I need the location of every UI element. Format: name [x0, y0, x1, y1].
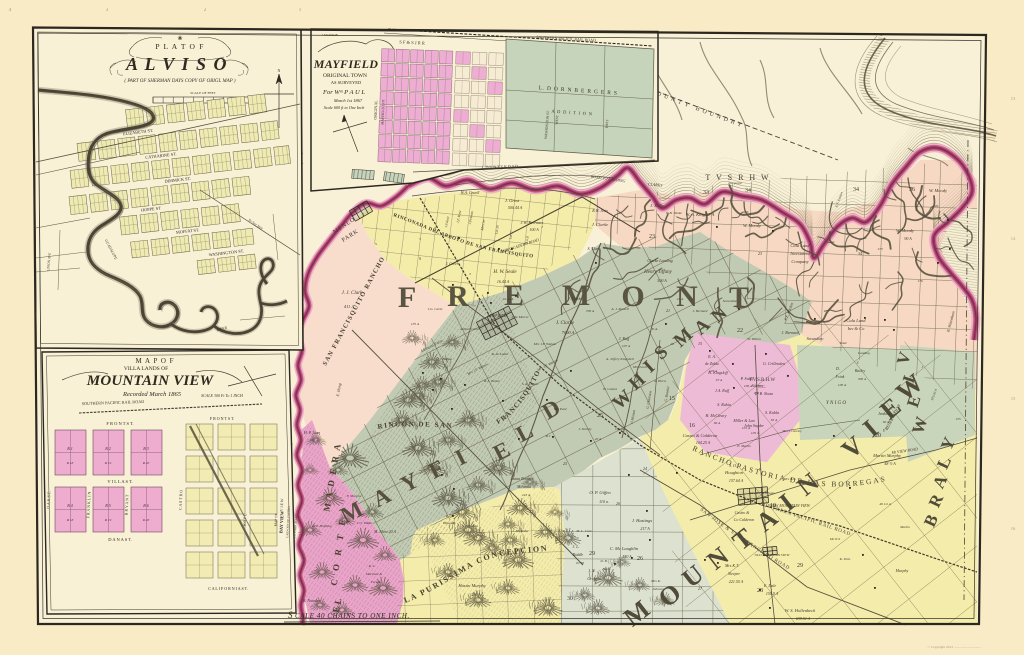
svg-text:14: 14 — [1011, 236, 1016, 241]
svg-text:Riddle: Riddle — [572, 552, 584, 557]
svg-text:16.44 A: 16.44 A — [503, 297, 515, 301]
svg-text:48 ½ A: 48 ½ A — [884, 461, 896, 466]
svg-text:105 A: 105 A — [751, 431, 760, 435]
svg-text:21: 21 — [666, 308, 670, 313]
svg-text:100 A: 100 A — [754, 391, 763, 395]
svg-text:13: 13 — [1011, 96, 1016, 101]
svg-text:F R O N T S T.: F R O N T S T. — [210, 416, 234, 421]
svg-text:R 20: R 20 — [142, 518, 150, 522]
svg-text:Secundino: Secundino — [807, 336, 824, 341]
svg-text:SCALE 300 Ft To 1 INCH: SCALE 300 Ft To 1 INCH — [201, 393, 244, 398]
svg-text:S. O.: S. O. — [729, 463, 737, 468]
svg-text:20 A: 20 A — [595, 437, 602, 441]
svg-text:Jenkins: Jenkins — [878, 411, 890, 416]
svg-text:H. W. Seale: H. W. Seale — [492, 270, 517, 275]
svg-text:D.: D. — [835, 366, 840, 371]
svg-text:J. Greer: J. Greer — [446, 262, 459, 266]
svg-text:Investment: Investment — [789, 251, 810, 256]
svg-text:48: 48 — [670, 342, 674, 346]
svg-text:34: 34 — [858, 251, 862, 256]
svg-text:Mrs Lovel: Mrs Lovel — [632, 365, 647, 369]
svg-text:S: S — [288, 610, 293, 620]
svg-text:173: 173 — [877, 247, 883, 251]
svg-text:H. McCleary: H. McCleary — [705, 413, 727, 418]
svg-text:30: 30 — [567, 596, 573, 602]
svg-text:24: 24 — [643, 466, 647, 471]
svg-text:22: 22 — [737, 328, 743, 334]
svg-text:23: 23 — [758, 251, 762, 256]
svg-text:Murphy: Murphy — [895, 568, 909, 573]
svg-text:B 1: B 1 — [67, 446, 72, 451]
svg-text:65 A: 65 A — [771, 418, 778, 422]
svg-text:VILLA LANDS OF: VILLA LANDS OF — [124, 366, 168, 372]
svg-text:J. Bernard: J. Bernard — [693, 309, 708, 313]
svg-text:A. Jeffery Kingsbell: A. Jeffery Kingsbell — [605, 357, 634, 361]
svg-text:M A P O F: M A P O F — [135, 357, 174, 365]
svg-text:V I E W: V I E W — [280, 498, 285, 511]
svg-text:W.A. Gruell: W.A. Gruell — [461, 190, 481, 195]
svg-text:F R O N T S T.: F R O N T S T. — [106, 421, 133, 426]
svg-text:15: 15 — [698, 341, 702, 346]
svg-text:K. Dots: K. Dots — [839, 557, 851, 561]
svg-text:34: 34 — [745, 188, 751, 194]
svg-text:Inv & Co: Inv & Co — [847, 326, 865, 331]
svg-text:100 A: 100 A — [838, 383, 847, 387]
svg-text:157.64 A: 157.64 A — [729, 478, 744, 483]
svg-text:33: 33 — [703, 190, 709, 196]
svg-text:V I L L A S T.: V I L L A S T. — [107, 479, 132, 484]
svg-text:J. Clarke: J. Clarke — [568, 297, 582, 301]
svg-text:107 A: 107 A — [622, 344, 631, 348]
svg-text:John Snyder: John Snyder — [744, 423, 764, 428]
svg-text:B 2: B 2 — [105, 446, 110, 451]
svg-text:E. Martin: E. Martin — [736, 444, 751, 448]
svg-text:25: 25 — [597, 413, 603, 419]
svg-text:Henry Tiffany: Henry Tiffany — [643, 270, 672, 275]
svg-text:S. Clark: S. Clark — [587, 246, 600, 251]
svg-text:110 a.: 110 a. — [599, 499, 609, 504]
svg-text:ORIGINAL: ORIGINAL — [373, 100, 379, 120]
svg-text:Mrs B.C.: Mrs B.C. — [783, 477, 797, 481]
svg-text:J. Kelly: J. Kelly — [650, 203, 664, 208]
svg-text:700 A: 700 A — [586, 309, 595, 313]
svg-text:O A K S T.: O A K S T. — [46, 491, 52, 509]
svg-text:J. Snively: J. Snively — [578, 427, 592, 431]
svg-text:R 19: R 19 — [104, 461, 112, 465]
svg-text:15: 15 — [669, 396, 675, 402]
svg-text:Y N I G O: Y N I G O — [826, 401, 846, 406]
svg-text:Cala Land: Cala Land — [790, 243, 810, 248]
svg-text:25: 25 — [563, 461, 567, 466]
svg-text:© Copyright 2013 .............: © Copyright 2013 .......................… — [927, 644, 981, 649]
svg-text:J.W. Beelware: J.W. Beelware — [521, 220, 544, 225]
svg-text:Graham: Graham — [587, 576, 600, 581]
svg-text:Scale 600 ft to One Inch: Scale 600 ft to One Inch — [324, 105, 365, 110]
svg-text:Mrs B.C. De Soto: Mrs B.C. De Soto — [749, 491, 775, 495]
svg-text:MAP OF: MAP OF — [274, 513, 279, 526]
svg-text:Ashbell Green: Ashbell Green — [459, 327, 480, 331]
svg-text:S.: S. — [759, 467, 762, 471]
svg-text:O. Hubba: O. Hubba — [438, 357, 452, 361]
svg-text:3: 3 — [469, 272, 471, 276]
svg-text:Mrs J Cawley: Mrs J Cawley — [781, 429, 802, 433]
svg-text:Secundino: Secundino — [723, 299, 738, 303]
svg-text:OLD MOUNTAIN VIEW: OLD MOUNTAIN VIEW — [755, 553, 791, 557]
svg-text:S: S — [419, 256, 421, 261]
svg-text:Houghton: Houghton — [724, 470, 744, 475]
svg-text:W. A. King 97 A: W. A. King 97 A — [686, 212, 715, 217]
svg-text:Landing: Landing — [857, 351, 870, 355]
svg-text:W. Moody: W. Moody — [896, 228, 914, 233]
svg-text:Mc K 9: Mc K 9 — [829, 537, 841, 541]
svg-text:AS SURVEYED: AS SURVEYED — [331, 80, 362, 85]
svg-text:P L A T O F: P L A T O F — [155, 42, 204, 51]
svg-text:16: 16 — [689, 423, 695, 429]
svg-text:S. Kubla: S. Kubla — [765, 410, 779, 415]
svg-text:15: 15 — [1011, 396, 1016, 401]
svg-text:J.: J. — [857, 360, 860, 365]
svg-text:23: 23 — [649, 234, 655, 240]
svg-text:67.48: 67.48 — [576, 561, 584, 565]
svg-text:M. L. Cure: M. L. Cure — [575, 529, 592, 533]
svg-text:B 6: B 6 — [143, 503, 148, 508]
svg-text:B 3: B 3 — [143, 446, 148, 451]
svg-text:159.9 A: 159.9 A — [766, 591, 779, 596]
svg-text:Mrs K.: Mrs K. — [650, 579, 661, 583]
svg-text:Total: Total — [839, 341, 846, 345]
svg-text:Sleeper: Sleeper — [728, 571, 740, 576]
svg-text:104.25 A: 104.25 A — [696, 440, 711, 445]
svg-text:Bailey: Bailey — [855, 368, 865, 373]
svg-text:B 4: B 4 — [67, 503, 72, 508]
svg-text:Cala Land: Cala Land — [846, 318, 866, 323]
svg-text:90 A: 90 A — [904, 236, 912, 241]
svg-text:E. Dale: E. Dale — [763, 583, 776, 588]
svg-text:240 A: 240 A — [622, 554, 632, 559]
svg-text:N: N — [278, 68, 281, 73]
svg-text:176: 176 — [917, 279, 923, 283]
svg-text:Castro &: Castro & — [735, 510, 751, 515]
svg-text:Co Calderon: Co Calderon — [734, 517, 755, 522]
svg-text:Clarke Landing: Clarke Landing — [647, 258, 672, 263]
svg-text:E.: E. — [879, 403, 883, 408]
svg-text:500 A: 500 A — [657, 278, 667, 283]
svg-text:A. J. Russell: A. J. Russell — [610, 307, 628, 311]
svg-text:R 18: R 18 — [66, 518, 74, 522]
svg-text:R 19: R 19 — [104, 518, 112, 522]
svg-text:C A L I F O R N I A S T.: C A L I F O R N I A S T. — [208, 586, 248, 591]
svg-text:D. B.: D. B. — [599, 559, 607, 563]
svg-text:J. Bernard: J. Bernard — [782, 330, 800, 335]
svg-text:S. Rubia: S. Rubia — [717, 402, 731, 407]
svg-text:J. J. Clark: J. J. Clark — [342, 291, 364, 296]
svg-text:66 A: 66 A — [714, 421, 721, 425]
svg-text:CALE 40 CHAINS TO ONE INCH.: CALE 40 CHAINS TO ONE INCH. — [295, 612, 410, 620]
svg-text:16: 16 — [1011, 526, 1016, 531]
svg-text:D A N A S T.: D A N A S T. — [108, 537, 132, 542]
svg-text:7000 A: 7000 A — [562, 330, 575, 335]
svg-text:J. Clarke: J. Clarke — [592, 222, 609, 227]
svg-text:Johnson: Johnson — [652, 587, 664, 591]
svg-text:135 A: 135 A — [411, 322, 420, 326]
svg-text:Miranda: Miranda — [516, 484, 531, 489]
svg-text:For Wᵐ P A U L: For Wᵐ P A U L — [322, 89, 365, 96]
svg-text:NEW MOUNTAIN VIEW: NEW MOUNTAIN VIEW — [769, 503, 811, 508]
svg-text:Castro & Calderon: Castro & Calderon — [683, 433, 718, 438]
svg-text:100 A: 100 A — [529, 227, 539, 232]
svg-text:E.A.: E.A. — [651, 327, 658, 331]
svg-text:P. Swall: P. Swall — [740, 376, 755, 381]
svg-text:26: 26 — [616, 501, 620, 506]
svg-text:W. Moody: W. Moody — [743, 223, 761, 228]
svg-text:S. A. Loreto: S. A. Loreto — [522, 382, 539, 386]
svg-text:J.G. Cavle: J.G. Cavle — [428, 307, 443, 311]
svg-text:SCALE OF FEET: SCALE OF FEET — [190, 91, 217, 95]
svg-text:36: 36 — [909, 187, 915, 193]
svg-text:300 A: 300 A — [858, 377, 867, 381]
svg-text:R.W. Soto: R.W. Soto — [591, 208, 608, 213]
svg-text:( PART OF SHERMAN DAYS COPY OF: ( PART OF SHERMAN DAYS COPY OF ORIGL MAP… — [124, 79, 235, 84]
svg-text:A. Herst: A. Herst — [653, 379, 667, 383]
svg-text:J. Hastings: J. Hastings — [632, 518, 652, 523]
svg-text:Martin: Martin — [899, 525, 910, 529]
svg-text:J. Ruff: J. Ruff — [619, 336, 630, 341]
svg-text:Stiertn: Stiertn — [752, 383, 763, 388]
svg-text:217 A: 217 A — [640, 526, 650, 531]
svg-text:W.B. Weske: W.B. Weske — [666, 211, 682, 215]
svg-text:R. de Lodze: R. de Lodze — [491, 352, 509, 356]
svg-text:G. Crillenden: G. Crillenden — [763, 361, 785, 366]
svg-text:lost point: lost point — [728, 181, 742, 185]
svg-text:Mrs K.T.: Mrs K.T. — [724, 563, 739, 568]
svg-text:Mrs J.F. Watson: Mrs J.F. Watson — [533, 342, 557, 346]
svg-text:48 1/2 A: 48 1/2 A — [879, 502, 892, 506]
svg-text:MAYFIELD: MAYFIELD — [313, 57, 378, 71]
svg-text:A L V I S O: A L V I S O — [125, 54, 228, 74]
svg-text:28: 28 — [757, 588, 763, 594]
svg-text:Frink: Frink — [835, 374, 845, 379]
svg-text:J. W. Mercer: J. W. Mercer — [511, 315, 529, 319]
svg-text:J. Clarke: J. Clarke — [556, 321, 575, 326]
svg-text:F: F — [398, 281, 416, 314]
svg-text:16.44 A: 16.44 A — [497, 279, 510, 284]
svg-text:Bush: Bush — [603, 567, 610, 571]
svg-text:221.55 A: 221.55 A — [729, 579, 744, 584]
svg-text:5: 5 — [419, 237, 421, 241]
svg-text:❀: ❀ — [177, 35, 182, 42]
svg-text:21 A: 21 A — [677, 297, 684, 301]
svg-text:20: 20 — [875, 433, 881, 439]
svg-text:H. Kingsloff: H. Kingsloff — [707, 370, 728, 375]
svg-text:Castro: Castro — [615, 427, 625, 431]
svg-text:Juana Briones: Juana Briones — [510, 476, 534, 481]
svg-text:I. N.: I. N. — [588, 568, 596, 573]
svg-text:155: 155 — [955, 417, 961, 421]
svg-text:C. Mc Laughlin: C. Mc Laughlin — [610, 546, 639, 551]
svg-text:29: 29 — [589, 551, 595, 557]
svg-text:67 A: 67 A — [716, 378, 723, 382]
svg-text:M: M — [562, 279, 590, 312]
svg-text:W. Moody: W. Moody — [929, 188, 947, 193]
svg-text:W. Whlon: W. Whlon — [747, 337, 761, 341]
svg-text:EAST: EAST — [605, 119, 610, 129]
svg-text:500.44 A: 500.44 A — [508, 205, 523, 210]
svg-text:ORIGINAL TOWN: ORIGINAL TOWN — [323, 73, 367, 79]
svg-text:26: 26 — [637, 556, 643, 562]
svg-text:J. Grost: J. Grost — [505, 198, 520, 203]
svg-text:MOUNTAIN VIEW: MOUNTAIN VIEW — [86, 373, 215, 389]
svg-text:March 1st 1867: March 1st 1867 — [333, 98, 363, 103]
svg-text:R 18: R 18 — [66, 461, 74, 465]
svg-text:J.A. Ruff: J.A. Ruff — [715, 388, 730, 393]
svg-text:34: 34 — [853, 187, 859, 193]
svg-text:W. S. Hollenbeck: W. S. Hollenbeck — [785, 608, 817, 613]
svg-text:C A S T R O: C A S T R O — [177, 490, 183, 511]
svg-text:S: S — [375, 242, 377, 246]
svg-text:R J: R J — [545, 434, 551, 438]
svg-text:de Zaldo: de Zaldo — [705, 361, 719, 366]
svg-text:E. A.: E. A. — [707, 354, 716, 359]
svg-text:J. L.: J. L. — [573, 544, 580, 549]
svg-text:411 A: 411 A — [344, 304, 354, 309]
svg-text:Wm Paul: Wm Paul — [554, 407, 567, 411]
svg-text:W. Gomez: W. Gomez — [603, 387, 618, 391]
svg-text:B 5: B 5 — [105, 503, 110, 508]
svg-text:O. P. Giffen: O. P. Giffen — [589, 490, 611, 495]
svg-text:R 20: R 20 — [142, 461, 150, 465]
svg-text:29: 29 — [797, 563, 803, 569]
svg-text:Company: Company — [791, 259, 808, 264]
svg-text:Recorded March 1865: Recorded March 1865 — [122, 391, 182, 398]
